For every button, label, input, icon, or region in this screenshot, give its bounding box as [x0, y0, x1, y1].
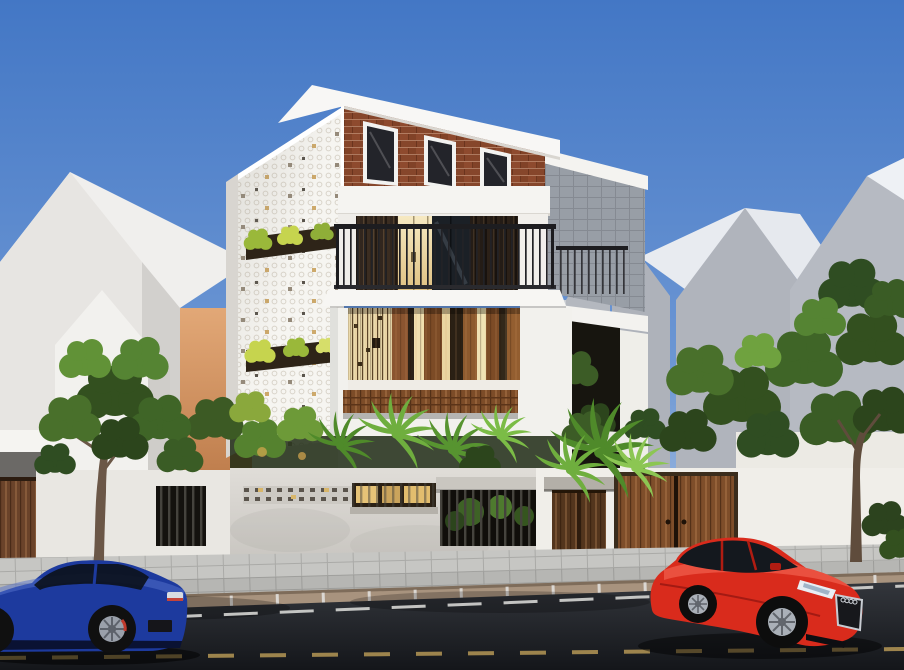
car-wheel [88, 605, 136, 653]
louver-screen [348, 308, 520, 380]
license-plate [148, 620, 172, 632]
lit-fence-slot [350, 483, 438, 514]
side-mirror [770, 563, 781, 570]
car-wheel [756, 596, 808, 648]
fence-window-bars [156, 486, 206, 546]
car-wheel [679, 585, 717, 623]
fence-window-bars [436, 477, 540, 546]
third-floor [334, 214, 556, 290]
granite-volume [543, 149, 648, 312]
side-balcony-railing [556, 246, 628, 250]
balcony-slab [322, 290, 566, 306]
balcony-railing [334, 224, 556, 289]
front-grille [836, 595, 862, 630]
breeze-block-strip [243, 486, 353, 504]
planter-band [343, 390, 518, 419]
fascia-band [338, 186, 550, 216]
left-gate [0, 477, 38, 571]
architectural-render [0, 0, 904, 670]
gable-window [363, 121, 398, 186]
gable-window [424, 135, 456, 190]
